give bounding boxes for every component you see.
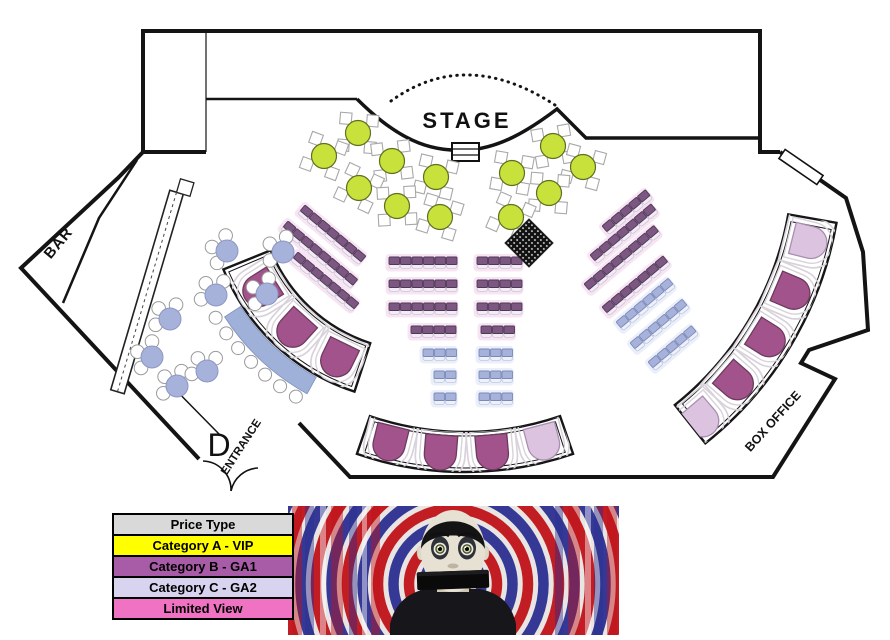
chair [245,355,258,368]
price-legend: Price TypeCategory A - VIPCategory B - G… [112,513,294,620]
seat-row [474,277,524,295]
seat[interactable] [489,257,500,268]
seat[interactable] [434,371,445,382]
seat[interactable] [447,280,458,291]
chair [209,311,222,324]
seat[interactable] [389,257,400,268]
seat[interactable] [424,303,435,314]
table[interactable] [185,351,222,382]
seat[interactable] [411,326,422,337]
seat[interactable] [424,257,435,268]
seat[interactable] [477,303,488,314]
seat[interactable] [446,349,457,360]
seat-row [478,323,517,341]
seat[interactable] [446,393,457,404]
seat[interactable] [435,349,446,360]
seat[interactable] [423,326,434,337]
door-letter-label: D [207,427,230,463]
seat[interactable] [504,326,515,337]
seat[interactable] [412,303,423,314]
chair [220,327,233,340]
seat[interactable] [435,257,446,268]
seat[interactable] [500,303,511,314]
seat[interactable] [502,393,513,404]
seat[interactable] [479,371,490,382]
vip-table[interactable] [490,151,535,196]
legend-row-category-a-vip: Category A - VIP [114,534,292,555]
seat[interactable] [502,371,513,382]
seat-row [476,390,515,408]
seat-row [386,300,459,318]
seat-row [386,277,459,295]
legend-row-limited-view: Limited View [114,597,292,618]
seat[interactable] [401,303,412,314]
seat[interactable] [477,257,488,268]
legend-row-category-b-ga1: Category B - GA1 [114,555,292,576]
seat-row [420,346,459,364]
chair [274,380,287,393]
seat-row [386,254,459,272]
seat-row [431,390,458,408]
seat[interactable] [424,280,435,291]
seat[interactable] [481,326,492,337]
seat[interactable] [423,349,434,360]
seat[interactable] [491,393,502,404]
seat[interactable] [446,326,457,337]
seat[interactable] [447,257,458,268]
seat-row [474,300,524,318]
seat[interactable] [435,303,446,314]
seat-row [476,346,515,364]
stage-back-arc [391,75,558,107]
seat[interactable] [479,349,490,360]
stage-stairs [452,143,479,161]
seat[interactable] [389,303,400,314]
seat[interactable] [489,280,500,291]
seat-row [431,368,458,386]
mouth-tape [417,570,490,591]
seat-row [408,323,458,341]
vip-table[interactable] [377,186,417,226]
exit-door[interactable] [779,149,823,184]
stage-label: STAGE [422,108,511,133]
seating-chart-page: STAGE BAR ENTRANCE BOX OFFICE D [0,0,890,640]
seat[interactable] [435,280,446,291]
seat[interactable] [401,257,412,268]
seat-row [476,368,515,386]
seat[interactable] [491,371,502,382]
seat[interactable] [412,257,423,268]
table[interactable] [157,364,189,400]
seat[interactable] [412,280,423,291]
seat[interactable] [512,280,523,291]
seat[interactable] [500,280,511,291]
table[interactable] [149,298,183,332]
seat[interactable] [502,349,513,360]
seat[interactable] [434,393,445,404]
seat[interactable] [477,280,488,291]
seat[interactable] [500,257,511,268]
legend-row-category-c-ga2: Category C - GA2 [114,576,292,597]
vip-table[interactable] [416,193,464,241]
seat[interactable] [389,280,400,291]
seat[interactable] [401,280,412,291]
seat[interactable] [447,303,458,314]
chair [259,368,272,381]
legend-row-price-type: Price Type [114,515,292,534]
seat[interactable] [493,326,504,337]
seat[interactable] [491,349,502,360]
table[interactable] [205,229,238,270]
seat[interactable] [512,303,523,314]
table[interactable] [194,275,230,306]
seat-row [474,254,524,272]
booth-band-bottom [357,411,574,482]
vip-table[interactable] [413,154,459,200]
chair [232,342,245,355]
seat[interactable] [446,371,457,382]
chair [289,390,302,403]
seat[interactable] [434,326,445,337]
seat[interactable] [479,393,490,404]
seat[interactable] [489,303,500,314]
